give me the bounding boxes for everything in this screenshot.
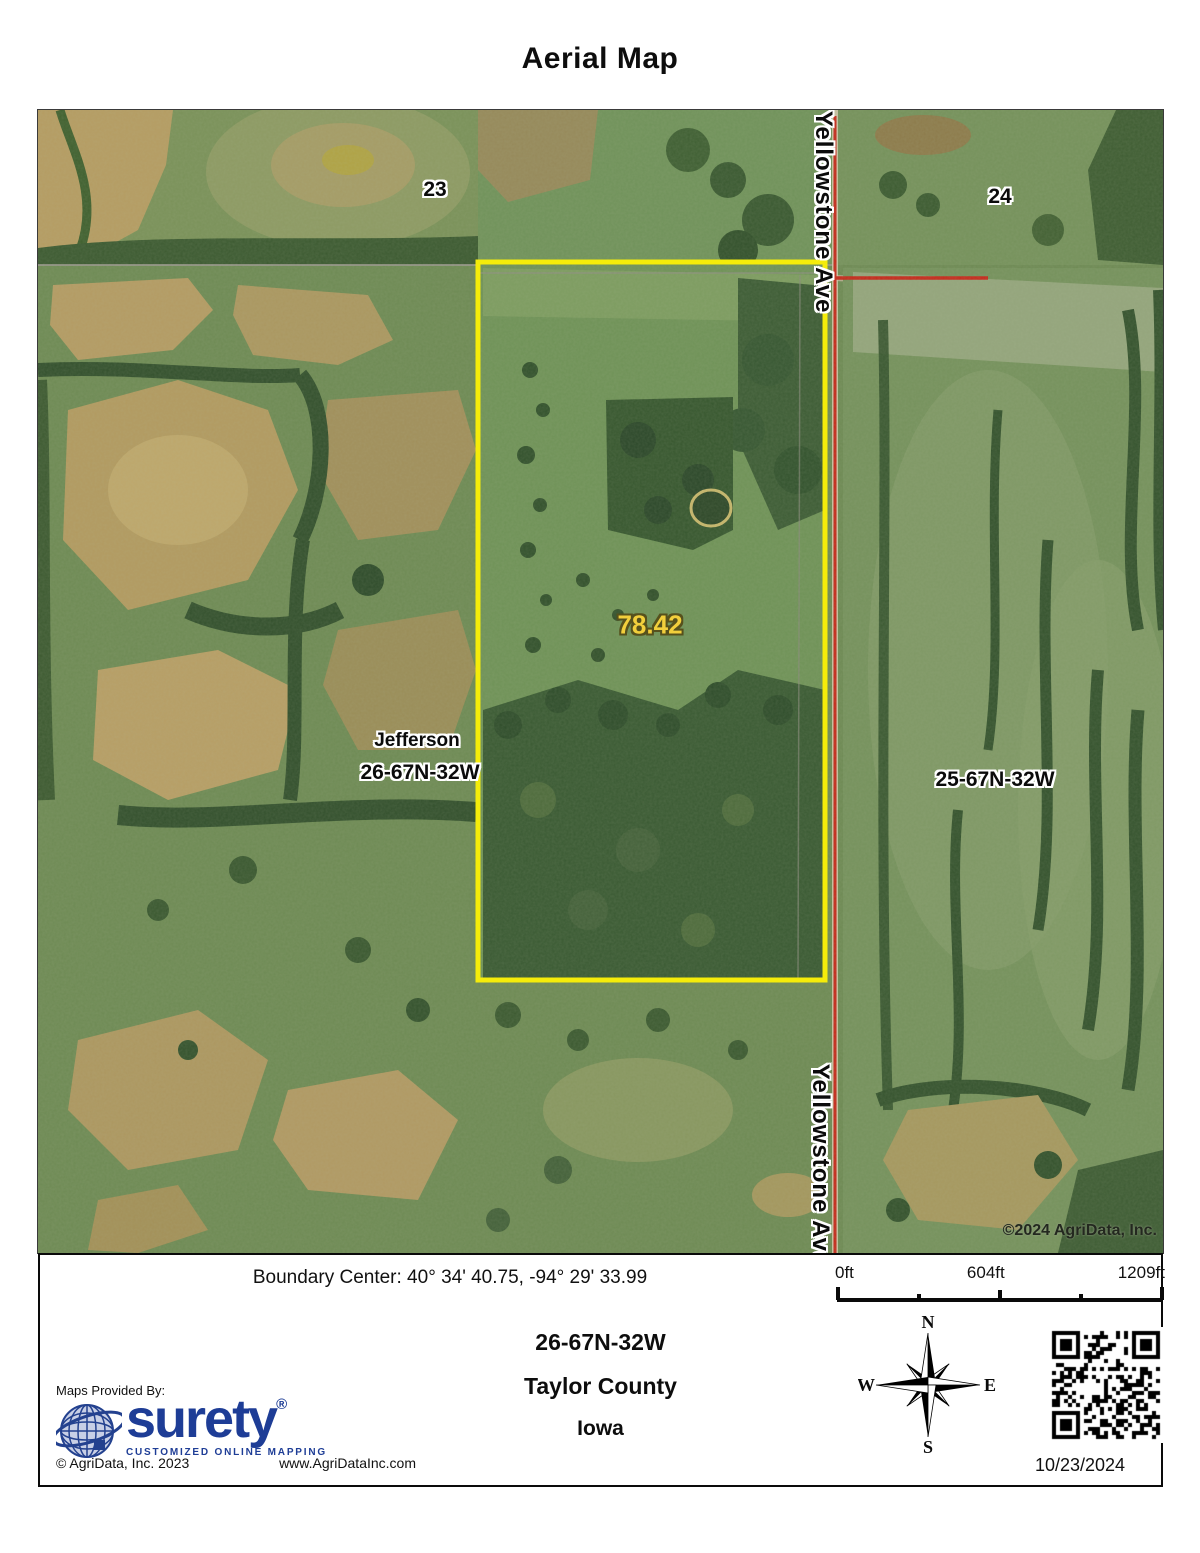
- aerial-map: 23 24 Yellowstone Ave Yellowstone Ave 78…: [38, 110, 1163, 1253]
- aerial-map-page: Aerial Map: [0, 0, 1200, 1553]
- township-range-label-left: 26-67N-32W: [360, 761, 479, 785]
- scale-label-mid: 604ft: [967, 1263, 1005, 1283]
- qr-code: [1048, 1327, 1164, 1443]
- scale-label-end: 1209ft: [1118, 1263, 1165, 1283]
- road-label-yellowstone-ave-top: Yellowstone Ave: [809, 111, 837, 314]
- globe-icon: [56, 1400, 122, 1462]
- provider-block: Maps Provided By: surety® CUSTOMIZED ONL…: [56, 1383, 416, 1462]
- page-title: Aerial Map: [0, 42, 1200, 76]
- scale-bar: 0ft 604ft 1209ft: [835, 1263, 1165, 1303]
- map-footer: Boundary Center: 40° 34' 40.75, -94° 29'…: [38, 1253, 1163, 1487]
- township-range-label-right: 25-67N-32W: [935, 768, 1054, 792]
- section-number-24: 24: [988, 185, 1011, 209]
- aerial-imagery: [38, 110, 1163, 1253]
- map-date: 10/23/2024: [985, 1455, 1175, 1476]
- compass-east-label: E: [984, 1375, 996, 1395]
- road-label-yellowstone-ave-bottom: Yellowstone Ave: [806, 1064, 834, 1253]
- compass-north-label: N: [922, 1315, 935, 1332]
- parcel-acreage-label: 78.42: [617, 610, 682, 641]
- agridata-credit-row: © AgriData, Inc. 2023 www.AgriDataInc.co…: [56, 1455, 416, 1471]
- agridata-copyright: © AgriData, Inc. 2023: [56, 1455, 189, 1471]
- compass-rose: N E S W: [858, 1315, 998, 1455]
- scale-bar-ruler: [835, 1285, 1165, 1303]
- boundary-center-coordinates: Boundary Center: 40° 34' 40.75, -94° 29'…: [100, 1267, 800, 1289]
- agridata-website: www.AgriDataInc.com: [279, 1455, 416, 1471]
- township-name-label: Jefferson: [374, 730, 460, 752]
- section-number-23: 23: [423, 178, 446, 202]
- map-copyright-watermark: ©2024 AgriData, Inc.: [1003, 1222, 1157, 1240]
- compass-south-label: S: [923, 1437, 933, 1455]
- compass-west-label: W: [858, 1375, 875, 1395]
- surety-logo: surety® CUSTOMIZED ONLINE MAPPING: [56, 1400, 416, 1462]
- scale-label-start: 0ft: [835, 1263, 854, 1283]
- registered-mark: ®: [276, 1396, 287, 1413]
- surety-brand-text: surety: [126, 1389, 276, 1449]
